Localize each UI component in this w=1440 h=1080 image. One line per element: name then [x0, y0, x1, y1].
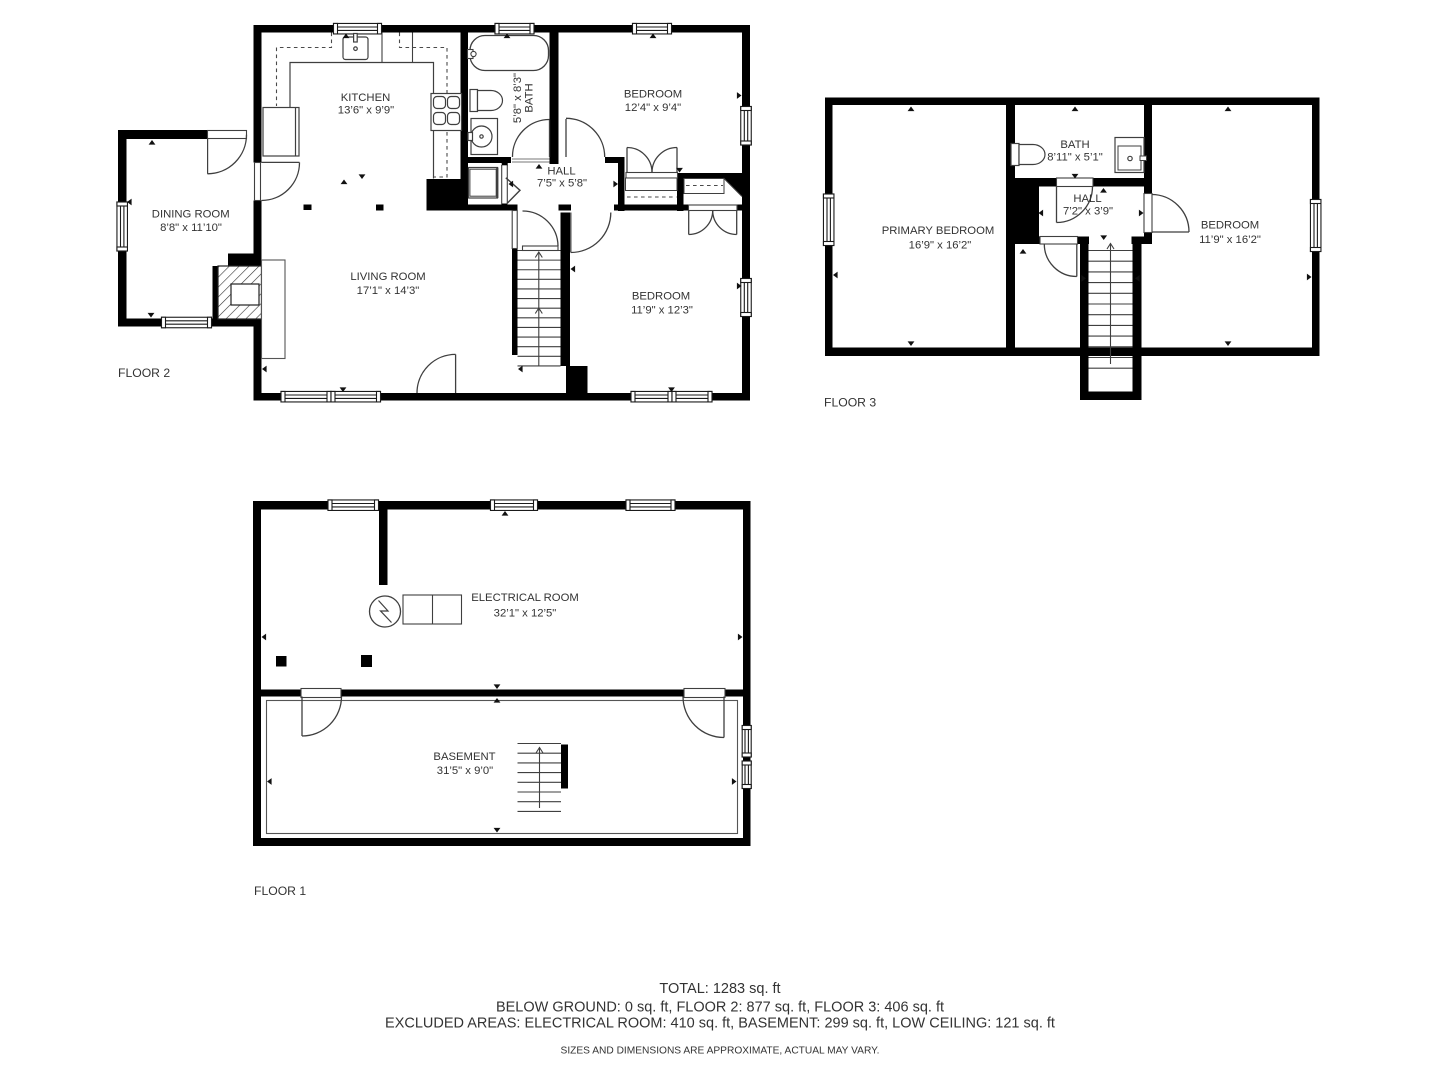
svg-text:TOTAL: 1283 sq. ft: TOTAL: 1283 sq. ft [659, 981, 780, 997]
svg-text:PRIMARY BEDROOM: PRIMARY BEDROOM [882, 225, 995, 237]
svg-text:31’5" x 9’0": 31’5" x 9’0" [437, 765, 493, 777]
svg-text:HALL: HALL [1073, 193, 1101, 205]
svg-text:8’8" x 11’10": 8’8" x 11’10" [160, 222, 222, 234]
svg-text:16’9" x 16’2": 16’9" x 16’2" [909, 239, 972, 251]
svg-text:ELECTRICAL ROOM: ELECTRICAL ROOM [471, 592, 579, 604]
svg-text:FLOOR 2: FLOOR 2 [118, 366, 170, 380]
svg-text:BATH: BATH [1060, 139, 1089, 151]
svg-text:BEDROOM: BEDROOM [624, 89, 682, 101]
svg-text:FLOOR 1: FLOOR 1 [254, 884, 306, 898]
svg-text:EXCLUDED AREAS: ELECTRICAL ROO: EXCLUDED AREAS: ELECTRICAL ROOM: 410 sq.… [385, 1016, 1055, 1032]
svg-text:8’11" x 5’1": 8’11" x 5’1" [1047, 152, 1103, 164]
svg-text:13’6" x 9’9": 13’6" x 9’9" [338, 105, 394, 117]
svg-text:BATH: BATH [524, 83, 536, 112]
svg-text:7’2" x 3’9": 7’2" x 3’9" [1063, 206, 1113, 218]
svg-text:BEDROOM: BEDROOM [1201, 220, 1259, 232]
svg-text:DINING ROOM: DINING ROOM [152, 209, 230, 221]
svg-text:SIZES AND DIMENSIONS ARE APPRO: SIZES AND DIMENSIONS ARE APPROXIMATE, AC… [561, 1046, 880, 1057]
svg-text:7’5" x 5’8": 7’5" x 5’8" [537, 178, 587, 190]
svg-text:HALL: HALL [547, 166, 575, 178]
svg-text:17’1" x 14’3": 17’1" x 14’3" [357, 285, 420, 297]
svg-text:BEDROOM: BEDROOM [632, 291, 690, 303]
svg-text:11’9" x 12’3": 11’9" x 12’3" [631, 305, 693, 317]
svg-text:LIVING ROOM: LIVING ROOM [350, 271, 425, 283]
svg-text:FLOOR 3: FLOOR 3 [824, 396, 876, 410]
svg-text:BELOW GROUND: 0 sq. ft, FLOOR: BELOW GROUND: 0 sq. ft, FLOOR 2: 877 sq.… [496, 1000, 944, 1016]
svg-text:32’1" x 12’5": 32’1" x 12’5" [494, 608, 557, 620]
svg-text:KITCHEN: KITCHEN [341, 92, 391, 104]
svg-text:12’4" x 9’4": 12’4" x 9’4" [625, 102, 681, 114]
svg-text:BASEMENT: BASEMENT [433, 751, 495, 763]
svg-text:5’8" x 8’3": 5’8" x 8’3" [512, 73, 524, 123]
svg-text:11’9" x 16’2": 11’9" x 16’2" [1199, 234, 1261, 246]
